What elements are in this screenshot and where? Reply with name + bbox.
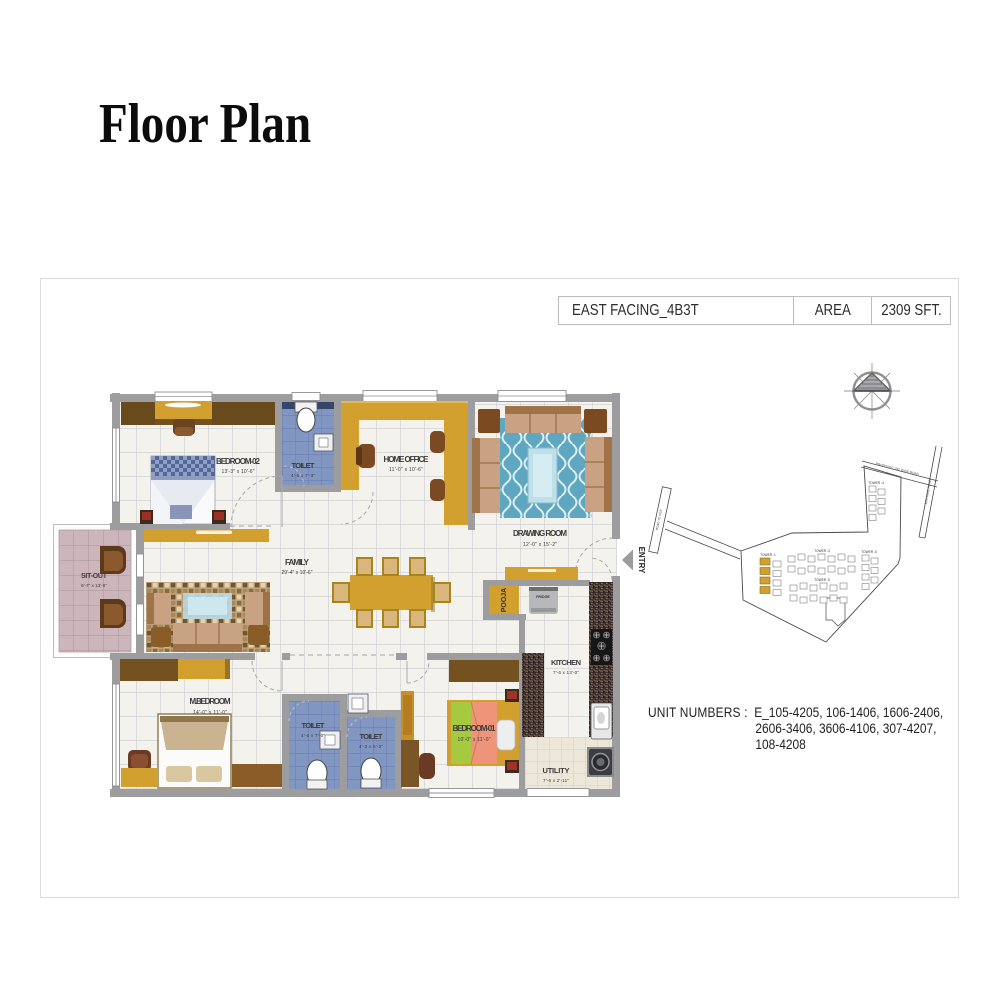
svg-text:FAMILY: FAMILY — [285, 558, 310, 567]
svg-text:4'-6 x 7'-3": 4'-6 x 7'-3" — [291, 473, 315, 478]
svg-text:10'-0" x 11'-0": 10'-0" x 11'-0" — [458, 737, 491, 743]
svg-text:TOWER -1: TOWER -1 — [760, 553, 776, 557]
svg-text:13'-3" x 10'-6": 13'-3" x 10'-6" — [222, 469, 255, 475]
svg-text:POOJA: POOJA — [501, 588, 508, 613]
svg-text:TOWER -3: TOWER -3 — [814, 549, 830, 553]
svg-text:TOILET: TOILET — [360, 732, 383, 741]
svg-text:12'-0" x 15'-2": 12'-0" x 15'-2" — [523, 542, 557, 548]
svg-text:6'-7" x 13'-6": 6'-7" x 13'-6" — [81, 583, 107, 588]
svg-text:7'-6 x 2'-11": 7'-6 x 2'-11" — [543, 778, 569, 783]
svg-text:BEDROOM-02: BEDROOM-02 — [216, 457, 261, 466]
svg-text:11'-0" x 10'-6": 11'-0" x 10'-6" — [389, 467, 423, 473]
svg-text:14'-0" x 11'-0": 14'-0" x 11'-0" — [193, 710, 227, 716]
svg-text:7'-6 x 13'-0": 7'-6 x 13'-0" — [553, 670, 579, 675]
svg-text:SIT-OUT: SIT-OUT — [81, 573, 108, 580]
svg-text:FRIDGE: FRIDGE — [536, 595, 550, 599]
svg-text:UTILITY: UTILITY — [543, 766, 570, 775]
svg-text:TOWER -4: TOWER -4 — [868, 481, 884, 485]
svg-text:TOILET: TOILET — [292, 461, 315, 470]
svg-text:4'-3 x 6'-3": 4'-3 x 6'-3" — [359, 744, 383, 749]
svg-text:ENTRY: ENTRY — [637, 547, 646, 574]
svg-text:KITCHEN: KITCHEN — [551, 658, 581, 667]
svg-text:HOME OFFICE: HOME OFFICE — [384, 455, 430, 464]
svg-text:M.BEDROOM: M.BEDROOM — [190, 697, 231, 706]
svg-text:29'-4" x 10'-6": 29'-4" x 10'-6" — [282, 570, 313, 576]
svg-text:BEDROOM-01: BEDROOM-01 — [453, 724, 497, 733]
svg-text:TOWER -5: TOWER -5 — [814, 578, 830, 582]
svg-text:TOWER -6: TOWER -6 — [861, 550, 877, 554]
svg-text:4'-6 x 7'-0": 4'-6 x 7'-0" — [301, 733, 325, 738]
svg-text:TOILET: TOILET — [302, 721, 325, 730]
svg-text:30M WIDE ROAD: 30M WIDE ROAD — [924, 478, 932, 504]
svg-text:DRAWING ROOM: DRAWING ROOM — [513, 529, 567, 538]
